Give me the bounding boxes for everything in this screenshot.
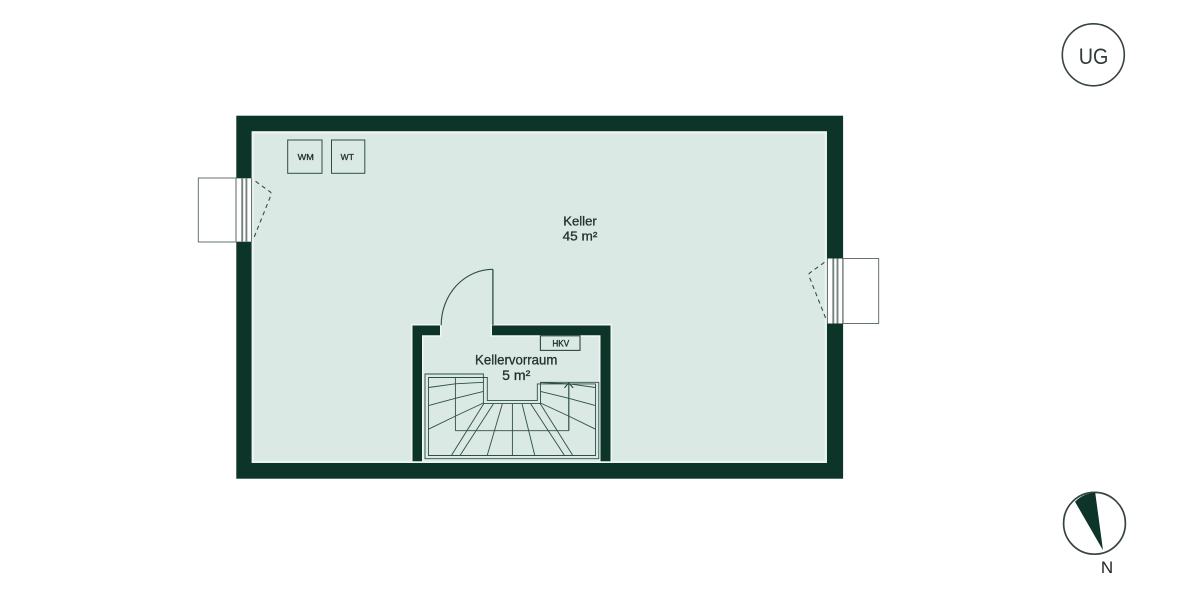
svg-text:HKV: HKV — [552, 339, 569, 349]
svg-text:WT: WT — [341, 152, 354, 162]
svg-text:Keller: Keller — [563, 213, 597, 228]
svg-text:45 m²: 45 m² — [563, 228, 599, 243]
svg-text:WM: WM — [298, 152, 314, 162]
svg-text:5 m²: 5 m² — [502, 368, 531, 383]
svg-text:Kellervorraum: Kellervorraum — [475, 353, 557, 368]
svg-text:N: N — [1101, 558, 1113, 577]
svg-text:UG: UG — [1079, 44, 1109, 69]
